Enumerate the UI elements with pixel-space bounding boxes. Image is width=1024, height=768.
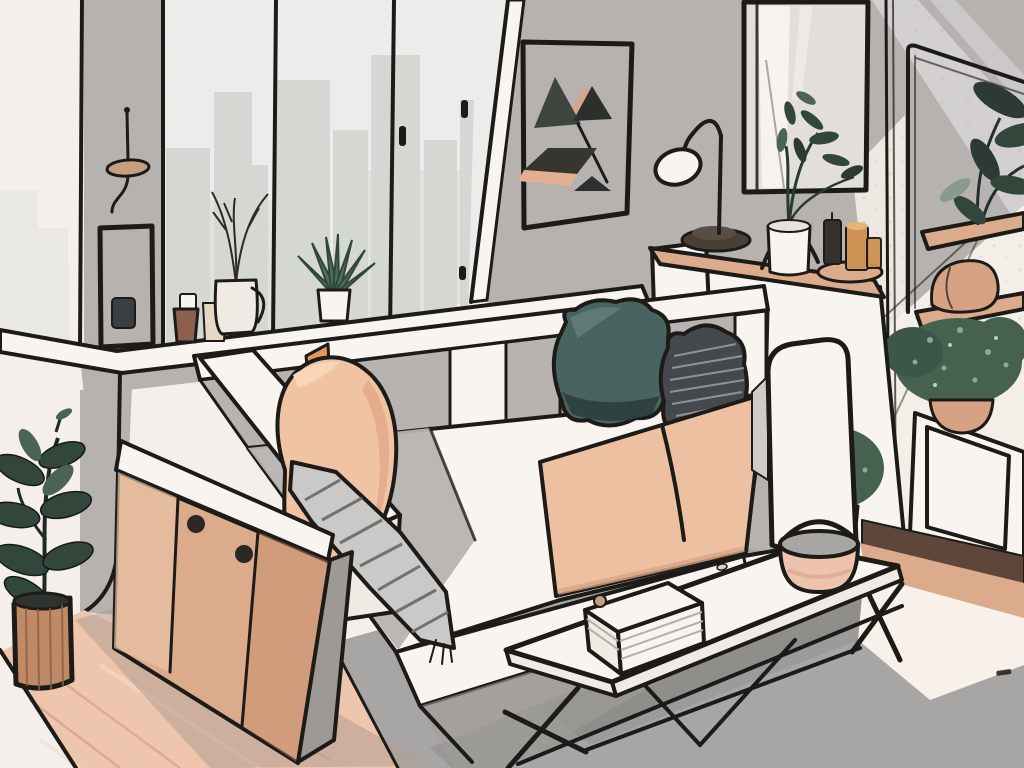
windowsill-pot [174, 309, 198, 342]
frame-cup [112, 298, 135, 328]
book-knob [594, 595, 606, 607]
illustration-stage [0, 0, 1024, 768]
white-vase [768, 226, 810, 275]
amber-candle [846, 226, 868, 270]
lamp-stem [719, 136, 721, 233]
sideboard-knob-left [187, 515, 205, 533]
mirror-reflection [758, 6, 790, 188]
dark-candle [824, 220, 841, 264]
succulent-pot [318, 290, 350, 321]
bowl [780, 522, 858, 592]
bowl-opening [780, 531, 858, 557]
teal-pillow [554, 299, 672, 425]
sideboard-knob-right [235, 545, 253, 563]
sofa-back-panel-white [450, 342, 506, 427]
living-room-illustration [0, 0, 1024, 768]
